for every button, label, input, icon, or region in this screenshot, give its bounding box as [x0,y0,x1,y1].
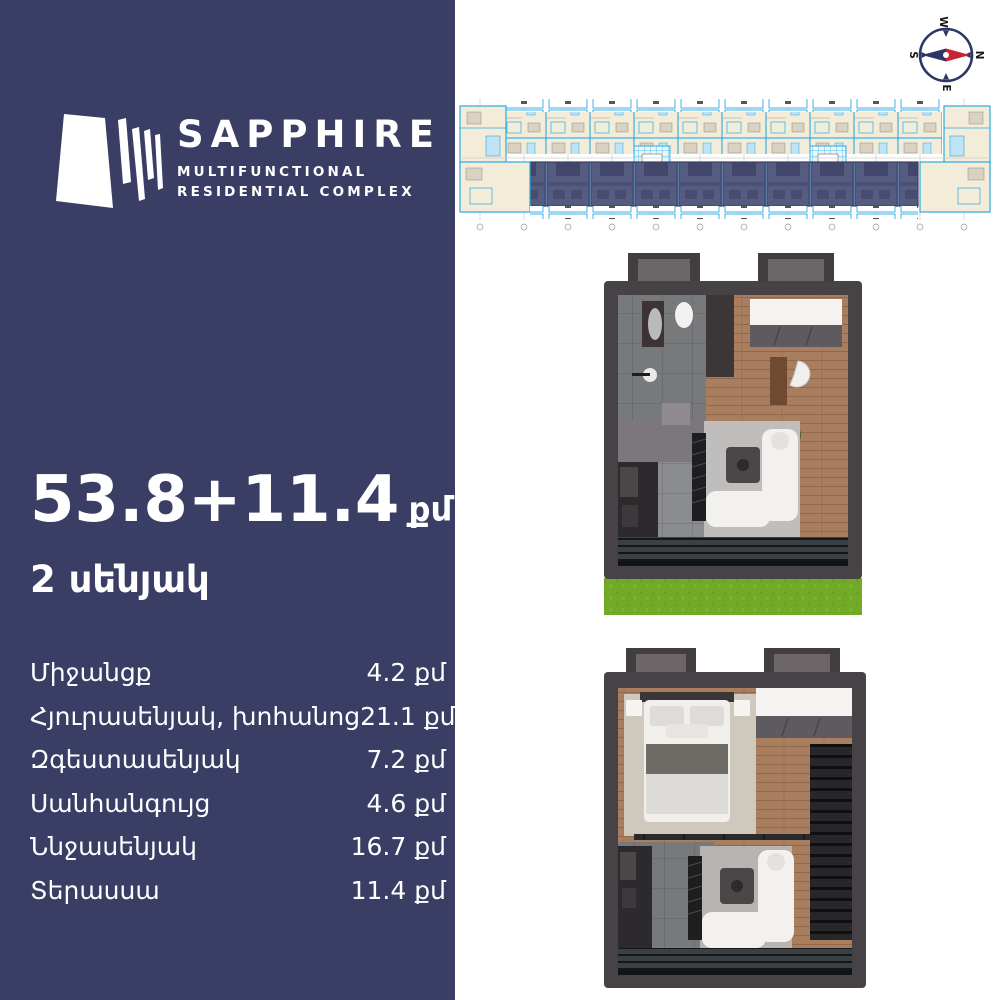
listing-poster: SAPPHIRE MULTIFUNCTIONAL RESIDENTIAL COM… [0,0,1000,1000]
info-panel: SAPPHIRE MULTIFUNCTIONAL RESIDENTIAL COM… [0,0,455,1000]
brand-tagline-line1: MULTIFUNCTIONAL [177,162,441,182]
apartment-summary: 53.8+11.4 քմ 2 սենյակ [30,468,452,601]
table-row: Ննջասենյակ 16.7 քմ [30,832,446,876]
table-row: Սանհանգույց 4.6 քմ [30,789,446,833]
brand-tagline-line2: RESIDENTIAL COMPLEX [177,182,441,202]
room-name: Սանհանգույց [30,789,210,818]
compass-label-south: S [908,51,919,59]
total-area: 53.8+11.4 քմ [30,468,452,532]
table-row: Զգեստասենյակ 7.2 քմ [30,745,446,789]
table-row: Միջանցք 4.2 քմ [30,658,446,702]
room-area-table: Միջանցք 4.2 քմ Հյուրասենյակ, խոհանոց 21.… [30,658,446,919]
room-area: 7.2 քմ [367,745,446,774]
room-area: 4.2 քմ [367,658,446,687]
compass-label-north: N [973,51,984,60]
rooms-count: 2 սենյակ [30,558,452,601]
compass-label-east: E [940,84,952,91]
table-row: Հյուրասենյակ, խոհանոց 21.1 քմ [30,702,446,746]
room-name: Հյուրասենյակ, խոհանոց [30,702,360,731]
brand-tagline: MULTIFUNCTIONAL RESIDENTIAL COMPLEX [177,162,441,203]
area-value: 53.8+11.4 [30,468,399,532]
room-area: 4.6 քմ [367,789,446,818]
room-area: 16.7 քմ [351,832,446,861]
sapphire-logo-icon [55,106,163,212]
floorplan-3d-upper [602,253,866,617]
brand-logo: SAPPHIRE MULTIFUNCTIONAL RESIDENTIAL COM… [55,106,441,212]
room-name: Զգեստասենյակ [30,745,241,774]
floorplan-3d-lower [604,648,874,992]
brand-text: SAPPHIRE MULTIFUNCTIONAL RESIDENTIAL COM… [177,116,441,203]
room-name: Ննջասենյակ [30,832,197,861]
brand-name: SAPPHIRE [177,116,441,153]
compass-icon: W N E S [908,16,984,92]
room-area: 21.1 քմ [360,702,455,731]
masterplan-blueprint [458,96,992,236]
area-unit: քմ [408,490,452,530]
room-area: 11.4 քմ [351,876,446,905]
room-name: Միջանցք [30,658,152,687]
room-name: Տերասսա [30,876,160,905]
compass-label-west: W [937,16,949,28]
table-row: Տերասսա 11.4 քմ [30,876,446,920]
